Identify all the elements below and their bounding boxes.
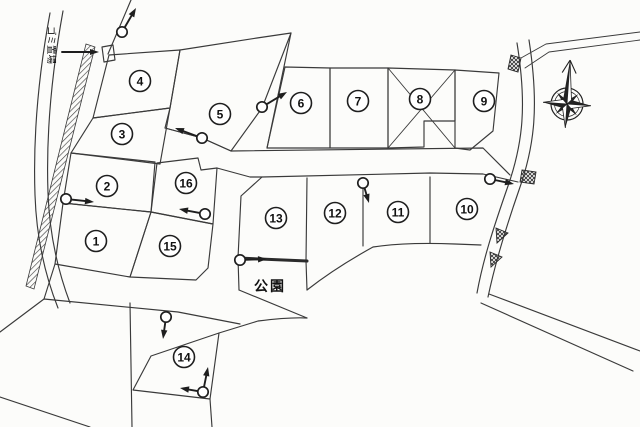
svg-text:1: 1: [93, 234, 100, 248]
plot-number-10: 10: [457, 199, 478, 220]
svg-text:6: 6: [298, 96, 305, 110]
plot-13-12-divider: [306, 178, 307, 290]
southeast-road-edge-1: [489, 294, 640, 351]
plot-number-5: 5: [210, 104, 231, 125]
plot-number-15: 15: [160, 236, 181, 257]
svg-text:4: 4: [137, 74, 144, 88]
road-hatch-block-top: [508, 55, 521, 72]
survey-marker-arrow: [235, 255, 267, 265]
center-plot-block: [130, 33, 291, 280]
slope-hatch-band: [26, 44, 95, 289]
southeast-road-edge-2: [481, 303, 633, 371]
svg-text:9: 9: [481, 94, 488, 108]
plot-14-south-extension: [210, 399, 212, 427]
plot-number-16: 16: [176, 173, 197, 194]
plot-number-11: 11: [388, 202, 409, 223]
svg-text:16: 16: [179, 176, 193, 190]
plot-number-4: 4: [130, 71, 151, 92]
plot-number-3: 3: [112, 124, 133, 145]
svg-text:7: 7: [355, 94, 362, 108]
survey-marker-arrow: [61, 194, 94, 204]
plot-number-13: 13: [266, 208, 287, 229]
plot-9-outline: [455, 70, 499, 150]
middle-plot-row: [238, 177, 481, 290]
plot-number-12: 12: [325, 203, 346, 224]
south-strip-line: [0, 299, 240, 332]
plot-number-8: 8: [410, 89, 431, 110]
plot-number-6: 6: [291, 93, 312, 114]
svg-text:15: 15: [163, 239, 177, 253]
svg-text:10: 10: [460, 202, 474, 216]
plot-number-14: 14: [174, 347, 195, 368]
right-road: [477, 32, 640, 371]
plot-numbers-layer: 12345678910111213141516: [86, 71, 495, 368]
svg-text:12: 12: [328, 206, 342, 220]
right-road-top-connector-2: [525, 40, 640, 68]
survey-markers-layer: [61, 8, 514, 397]
plot-13-left-edge: [238, 177, 262, 290]
survey-marker-arrow: [179, 208, 210, 220]
park-bottom-curve: [239, 290, 307, 318]
plot-row-bottom-curve: [307, 243, 481, 290]
compass-rose-icon: [541, 58, 594, 129]
road-hatch-block-mid: [520, 170, 536, 184]
plot-number-7: 7: [348, 91, 369, 112]
site-plan-map: ゴミ置場 公園 123456: [0, 0, 640, 427]
survey-marker-arrow: [117, 8, 136, 37]
garbage-area-label: ゴミ置場: [45, 26, 57, 65]
plot-number-9: 9: [474, 91, 495, 112]
map-canvas: ゴミ置場 公園 123456: [0, 0, 640, 427]
middle-road: [165, 128, 518, 182]
survey-marker-arrow: [257, 92, 287, 112]
north-plot-row: [267, 33, 499, 150]
survey-marker-arrow: [358, 178, 370, 203]
svg-text:13: 13: [269, 211, 283, 225]
plot-number-2: 2: [97, 176, 118, 197]
southwest-corner-line: [0, 397, 90, 427]
survey-marker-arrow: [161, 312, 171, 339]
svg-text:8: 8: [417, 92, 424, 106]
svg-text:11: 11: [392, 205, 405, 219]
right-road-top-connector-1: [521, 32, 640, 58]
right-road-inner-edge: [477, 43, 523, 293]
left-road: [26, 11, 95, 308]
svg-text:2: 2: [104, 179, 111, 193]
south-road-vertical-edge: [130, 303, 132, 427]
survey-marker-arrow: [180, 367, 209, 397]
svg-text:5: 5: [217, 107, 224, 121]
svg-text:3: 3: [119, 127, 126, 141]
plot-14-top-extension: [219, 318, 307, 333]
park-label: 公園: [254, 278, 286, 294]
svg-text:14: 14: [177, 350, 191, 364]
plot-number-1: 1: [86, 231, 107, 252]
